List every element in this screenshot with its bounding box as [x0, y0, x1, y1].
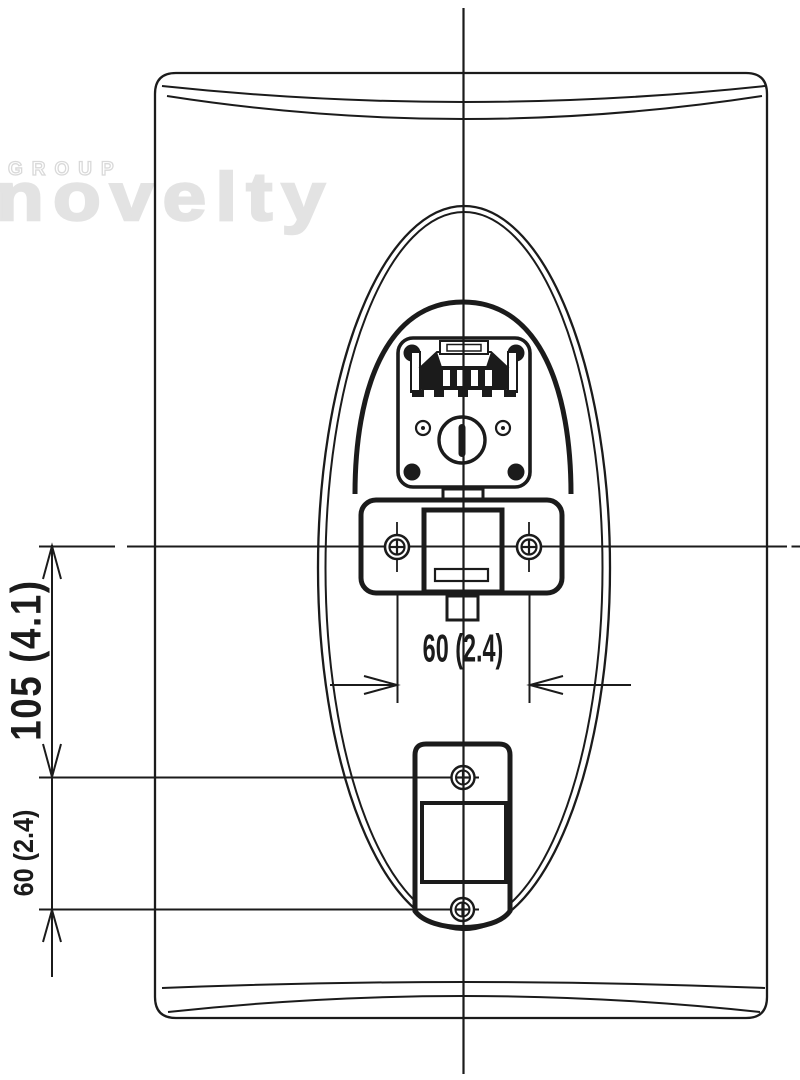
dimension-label-vertical-60: 60 (2.4)	[10, 810, 38, 897]
dimension-label-vertical-105: 105 (4.1)	[6, 579, 49, 741]
rotation-knob	[439, 417, 485, 463]
speaker-rear-dimension-drawing	[0, 0, 800, 1080]
technical-drawing-page: GROUP novelty	[0, 0, 800, 1080]
dimension-label-horizontal-60: 60 (2.4)	[423, 630, 504, 669]
